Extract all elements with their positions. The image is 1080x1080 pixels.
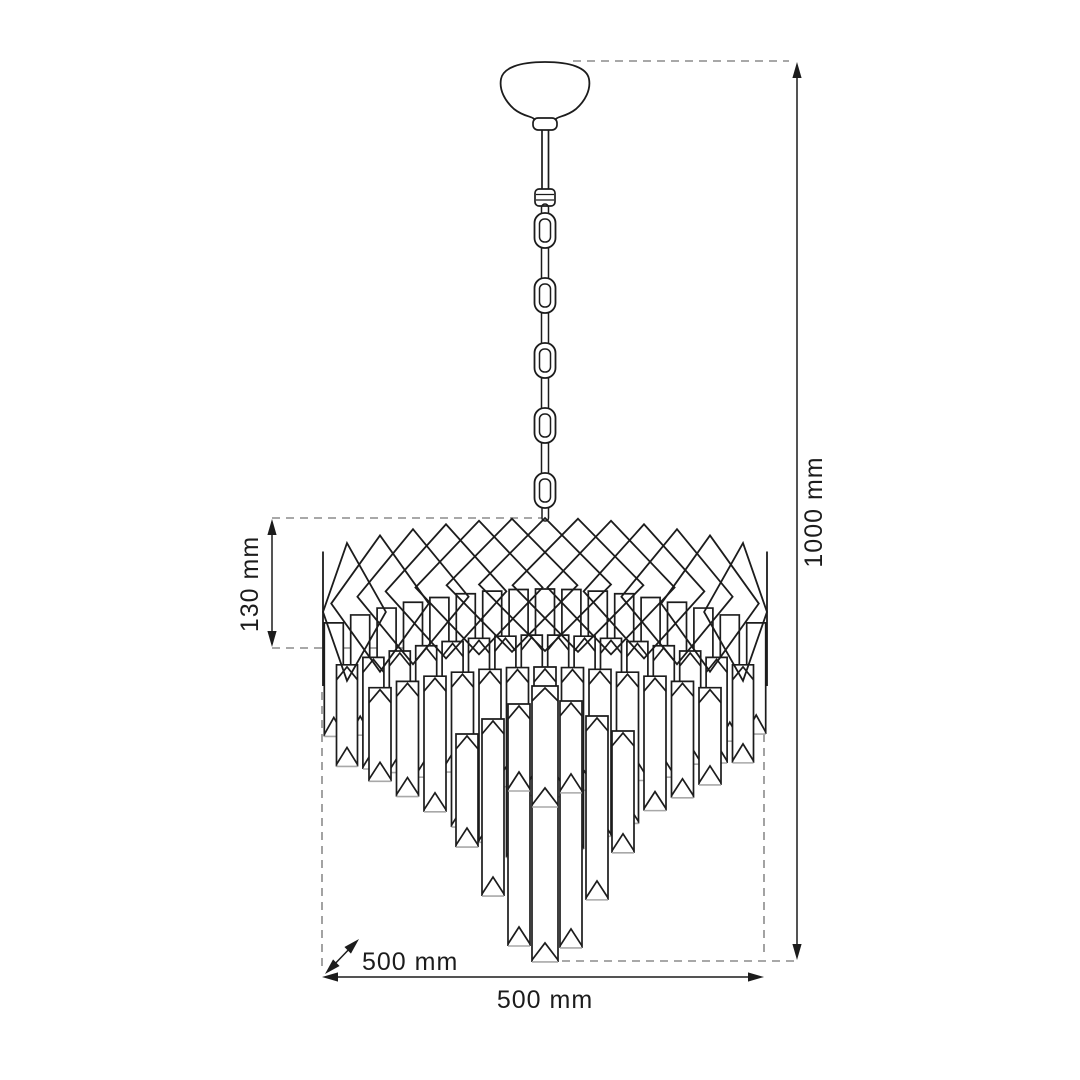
dim-depth-label: 500 mm <box>362 948 458 976</box>
dimension-drawing-page: 1000 mm 130 mm 500 mm 500 mm <box>0 0 1080 1080</box>
dim-total-height-label: 1000 mm <box>800 456 828 567</box>
dim-width-label: 500 mm <box>497 986 593 1014</box>
dim-crown-height-label: 130 mm <box>236 536 264 632</box>
canopy-and-chain <box>501 62 590 521</box>
chandelier-dimension-drawing: 1000 mm 130 mm 500 mm 500 mm <box>0 0 1080 1080</box>
